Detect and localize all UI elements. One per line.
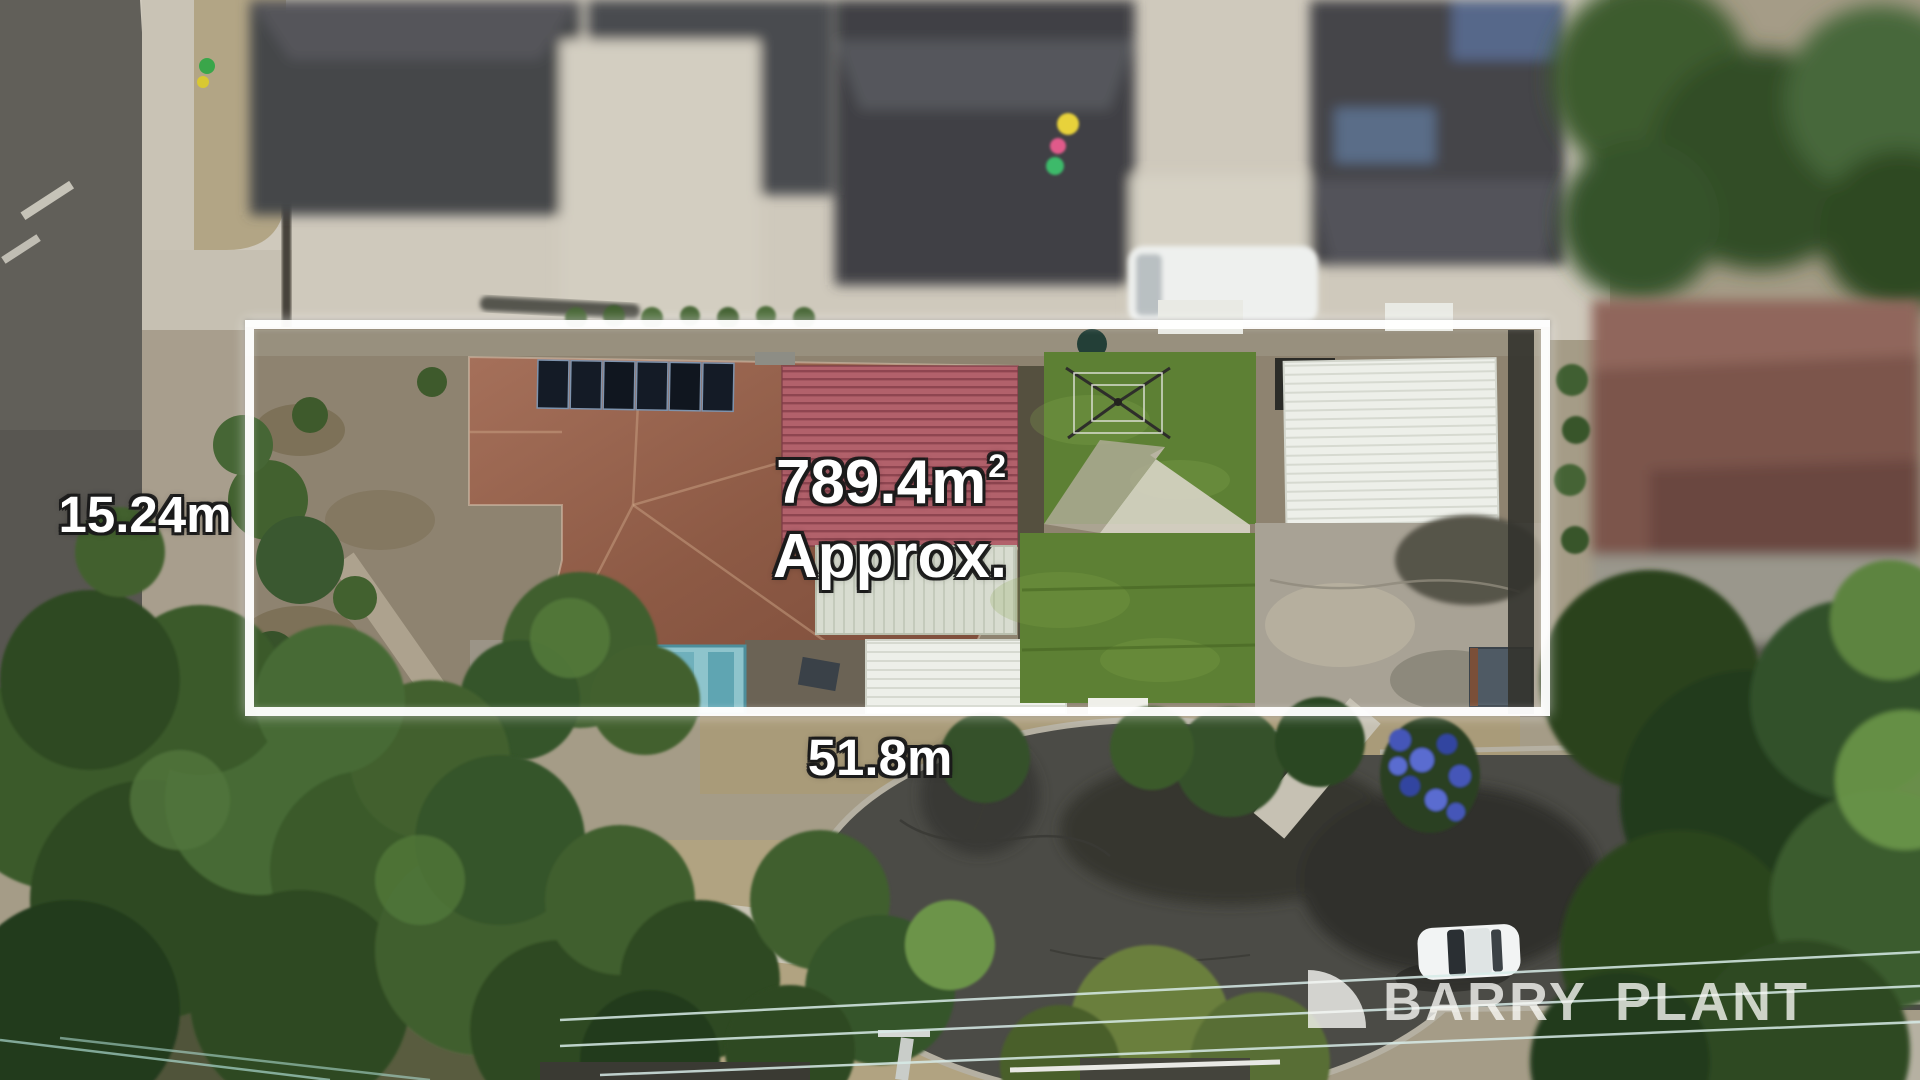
brand-word-plant: PLANT bbox=[1615, 978, 1810, 1028]
area-label: 789.4m2 Approx. bbox=[725, 452, 1055, 588]
area-value-line: 789.4m2 bbox=[725, 452, 1055, 514]
brand-watermark: BARRY PLANT bbox=[1308, 968, 1810, 1028]
front-dimension-label: 51.8m bbox=[780, 732, 980, 783]
brand-word-barry: BARRY bbox=[1383, 978, 1588, 1028]
area-qualifier-line: Approx. bbox=[725, 526, 1055, 588]
blue-flower-patch bbox=[1380, 717, 1480, 833]
area-qualifier-text: Approx. bbox=[773, 522, 1007, 591]
side-dimension-label: 15.24m bbox=[45, 489, 245, 540]
aerial-property-photo: 15.24m 789.4m2 Approx. 51.8m BARRY PLANT bbox=[0, 0, 1920, 1080]
top-right-trees-blurred bbox=[1550, 0, 1920, 310]
area-exponent-text: 2 bbox=[988, 448, 1006, 484]
quarter-circle-icon bbox=[1308, 970, 1366, 1028]
front-dimension-text: 51.8m bbox=[808, 729, 953, 786]
side-dimension-text: 15.24m bbox=[59, 486, 232, 543]
area-value-text: 789.4m bbox=[776, 448, 986, 517]
